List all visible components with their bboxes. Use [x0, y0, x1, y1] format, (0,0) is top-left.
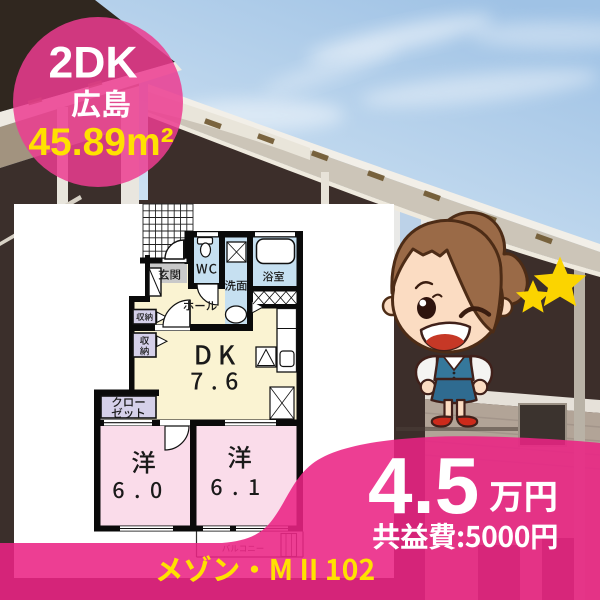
svg-text:4.5: 4.5	[368, 441, 479, 530]
svg-text:45.89m²: 45.89m²	[28, 121, 173, 164]
svg-text:2DK: 2DK	[48, 39, 137, 88]
